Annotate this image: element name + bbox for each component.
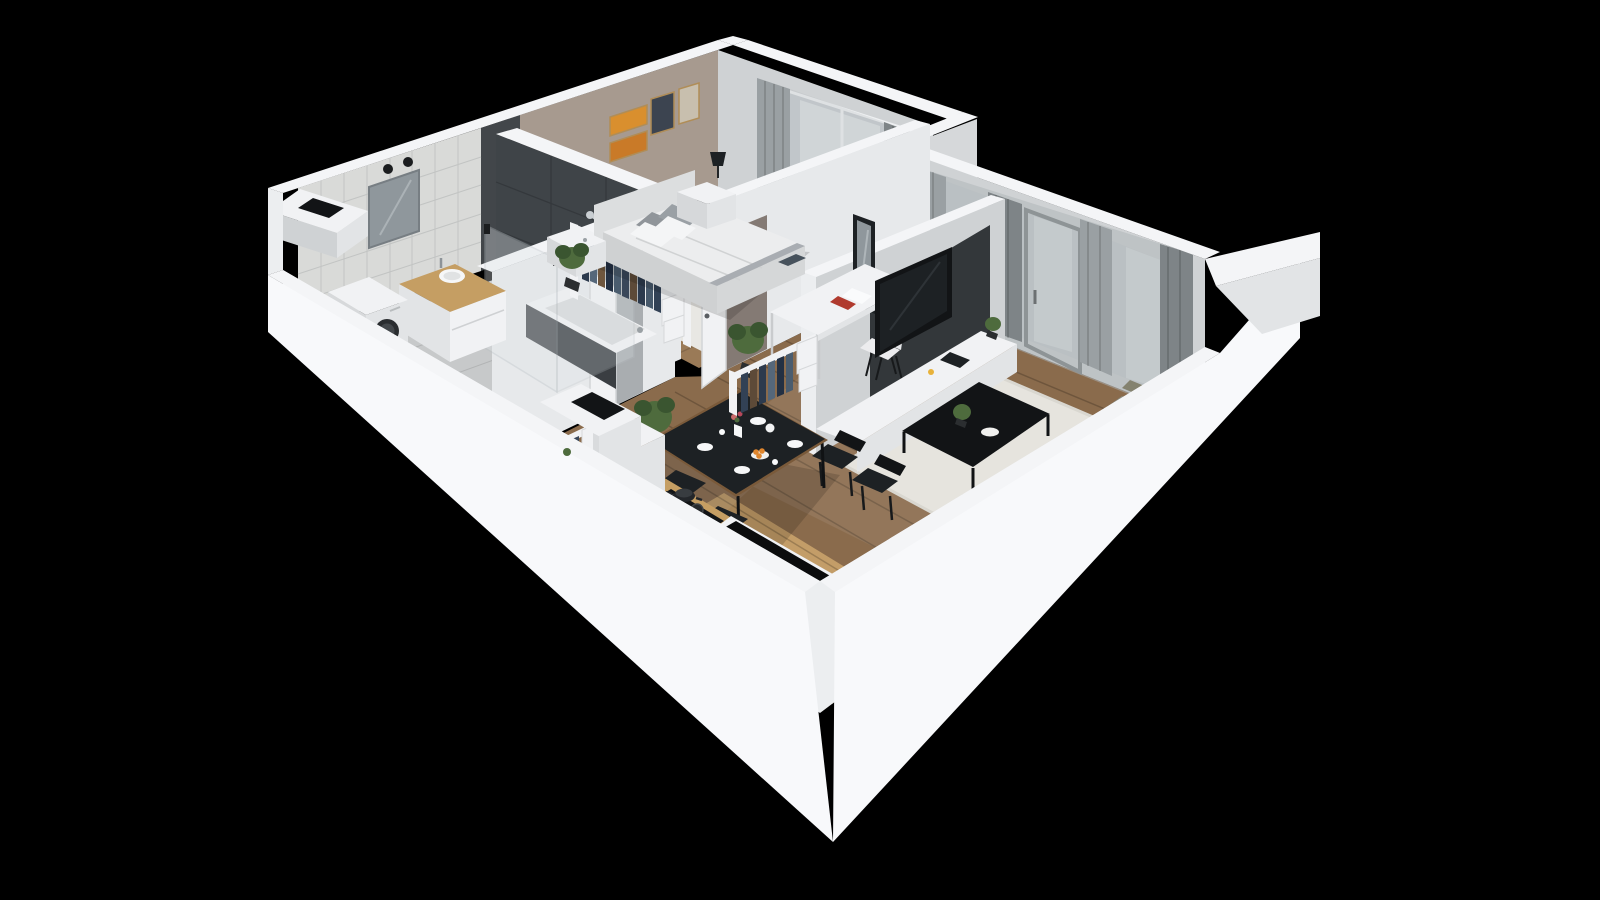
console-plant <box>985 317 1001 331</box>
tub-drain <box>637 327 643 333</box>
plate <box>787 440 803 448</box>
scene-canvas <box>0 0 1600 900</box>
picture-frame-1 <box>679 83 699 124</box>
glass-hinge <box>484 224 490 234</box>
cup <box>719 429 725 435</box>
plate <box>697 443 713 451</box>
table-tray <box>981 428 999 437</box>
plate <box>750 417 766 425</box>
floorplan-3d-render <box>0 0 1600 900</box>
sconce-light <box>403 157 413 167</box>
wall-top-plant <box>563 448 571 456</box>
cup <box>772 459 778 465</box>
sconce-light <box>383 164 393 174</box>
picture-frame-2 <box>651 92 674 135</box>
door-handle <box>705 314 710 319</box>
teapot <box>766 424 775 433</box>
table-plant <box>953 404 971 420</box>
yellow-cup <box>928 369 934 375</box>
plate <box>734 466 750 474</box>
